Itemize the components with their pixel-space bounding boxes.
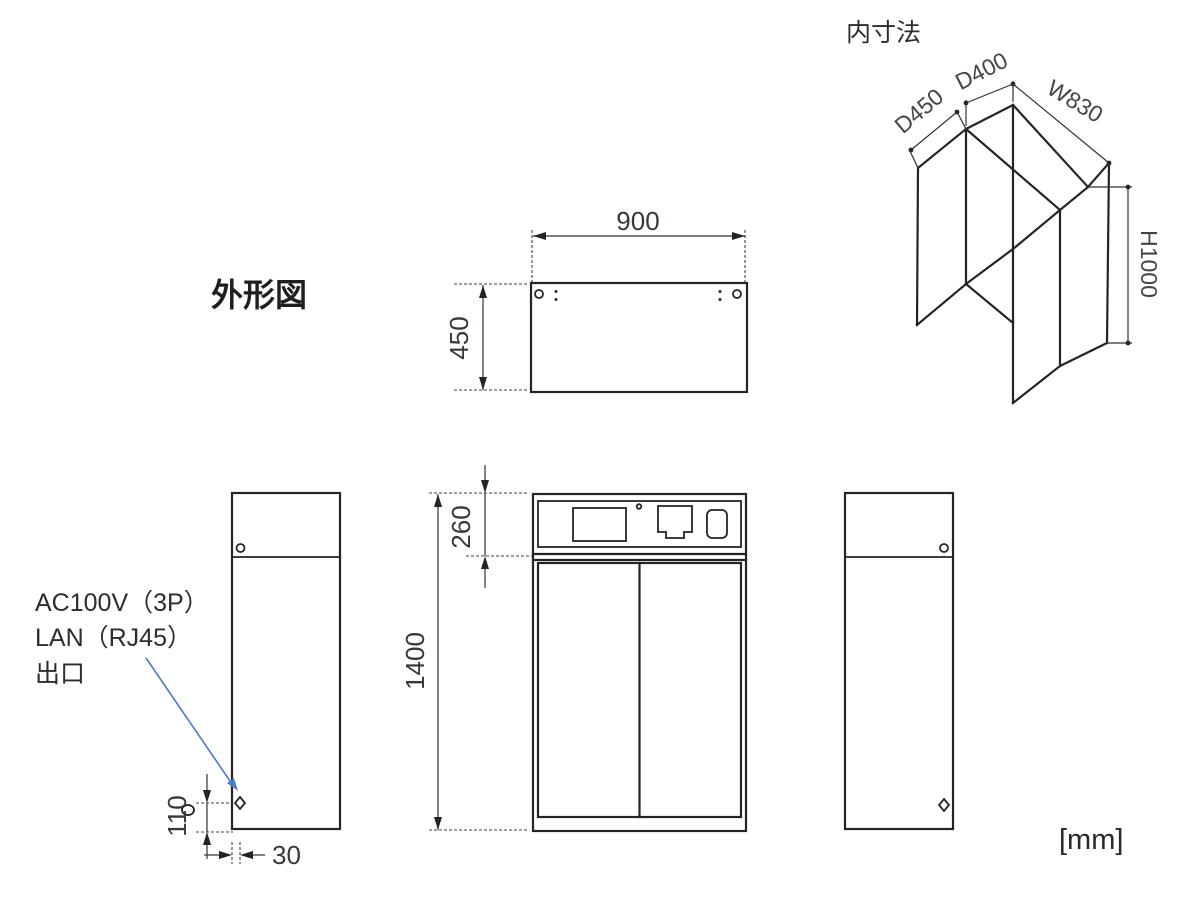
front-panel-display — [573, 508, 626, 541]
front-panel-outlet — [707, 510, 727, 538]
top-view-dot — [719, 298, 722, 301]
callout-ac-lan-outlet: AC100V（3P） LAN（RJ45） 出口 — [35, 589, 238, 791]
dim-260-label: 260 — [446, 505, 476, 548]
top-view-right-hole — [733, 290, 741, 298]
iso-dimensions: D450 D400 W830 H1000 — [889, 47, 1162, 346]
drawing-canvas: 外形図 内寸法 [mm] 900 450 — [0, 0, 1200, 900]
dim-900-label: 900 — [616, 206, 659, 236]
left-side-view — [232, 493, 340, 829]
top-view-dot — [555, 290, 558, 293]
top-view — [531, 283, 747, 392]
callout-leader-line — [146, 658, 230, 781]
unit-label: [mm] — [1059, 824, 1123, 856]
top-view-dot — [555, 298, 558, 301]
right-side-outline — [845, 493, 953, 829]
top-view-dot — [719, 290, 722, 293]
technical-drawing-page: 外形図 内寸法 [mm] 900 450 — [0, 0, 1200, 900]
right-side-lock-hole — [940, 544, 948, 552]
dim-30: 30 — [204, 840, 301, 870]
dim-1400-label: 1400 — [400, 632, 430, 690]
top-view-left-hole — [535, 290, 543, 298]
left-side-outline — [232, 493, 340, 829]
dim-110-label: 110 — [162, 795, 192, 836]
dim-450-label: 450 — [444, 316, 474, 359]
dim-h1000-label: H1000 — [1136, 230, 1162, 298]
dim-30-label: 30 — [272, 840, 301, 870]
dim-260: 260 — [429, 465, 532, 588]
iso-inner-view — [917, 105, 1109, 403]
dim-w830-label: W830 — [1043, 75, 1108, 128]
callout-line2: LAN（RJ45） — [35, 624, 192, 652]
right-side-outlet-port — [939, 799, 949, 811]
front-panel-led — [637, 504, 642, 509]
front-view — [533, 494, 746, 831]
outline-drawing-title: 外形図 — [211, 277, 307, 313]
dim-d450-label: D450 — [889, 83, 948, 138]
dim-900: 900 — [532, 206, 745, 282]
left-side-outlet-port — [235, 797, 245, 809]
left-side-lock-hole — [237, 544, 245, 552]
dim-450: 450 — [444, 284, 529, 390]
callout-line3: 出口 — [35, 660, 85, 688]
dim-110: 110 — [162, 774, 233, 859]
top-view-outline — [531, 283, 747, 392]
callout-line1: AC100V（3P） — [35, 589, 209, 617]
inner-dimensions-title: 内寸法 — [846, 19, 921, 47]
right-side-view — [845, 493, 953, 829]
front-panel-rj45-jack — [658, 506, 692, 538]
